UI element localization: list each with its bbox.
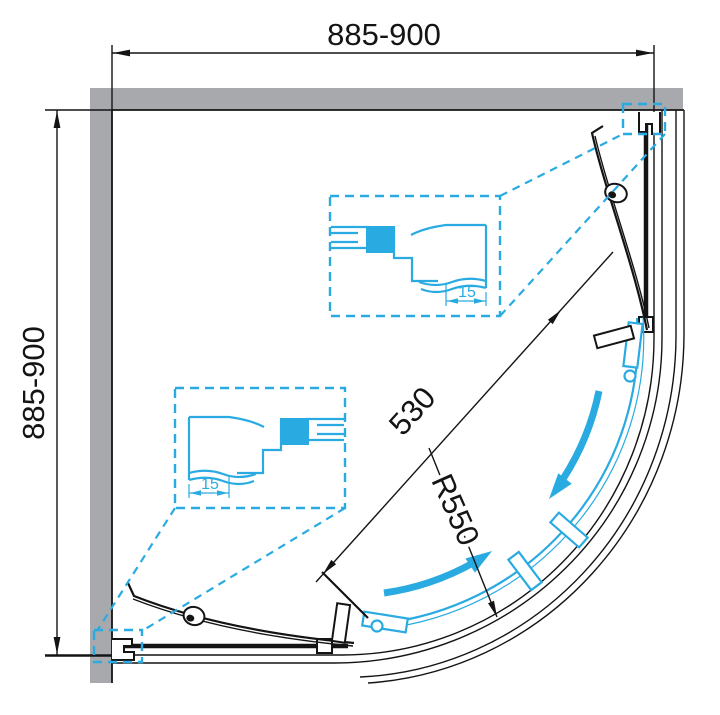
profile-section-top: 15 bbox=[331, 225, 486, 306]
door-handle bbox=[182, 605, 207, 628]
open-door-top bbox=[592, 126, 649, 348]
slide-arrow-lower bbox=[384, 551, 492, 593]
dim-15-top-label: 15 bbox=[458, 284, 476, 301]
wall-profile-bottom-left bbox=[112, 639, 134, 660]
dim-r550: R550 bbox=[425, 448, 497, 617]
dim-530-label: 530 bbox=[382, 380, 443, 442]
left-wall bbox=[90, 88, 112, 683]
sliding-door-arc bbox=[362, 317, 644, 632]
wall-profile-top-right bbox=[639, 112, 660, 134]
door-bracket bbox=[332, 603, 350, 642]
dim-left-label: 885-900 bbox=[16, 326, 51, 440]
drawing-canvas: 885-900 885-900 bbox=[0, 0, 720, 715]
dim-r550-label: R550 bbox=[425, 469, 487, 551]
dim-top-label: 885-900 bbox=[327, 17, 441, 52]
detail-leader bbox=[142, 508, 345, 631]
glass-section-fill bbox=[281, 418, 309, 445]
detail-leader bbox=[500, 134, 623, 196]
open-door-bottom bbox=[128, 572, 368, 646]
glass-section-fill bbox=[366, 226, 394, 253]
enclosure-rim-lines bbox=[45, 45, 684, 683]
top-wall bbox=[90, 88, 683, 110]
detail-leader bbox=[500, 134, 665, 316]
door-end-bottom bbox=[362, 612, 408, 633]
shower-enclosure-plan-drawing: 885-900 885-900 bbox=[0, 0, 720, 715]
dim-15-left-label: 15 bbox=[201, 476, 219, 493]
profile-section-left: 15 bbox=[189, 417, 344, 498]
slide-arrow-upper bbox=[549, 391, 599, 499]
detail-leaders bbox=[97, 134, 665, 631]
